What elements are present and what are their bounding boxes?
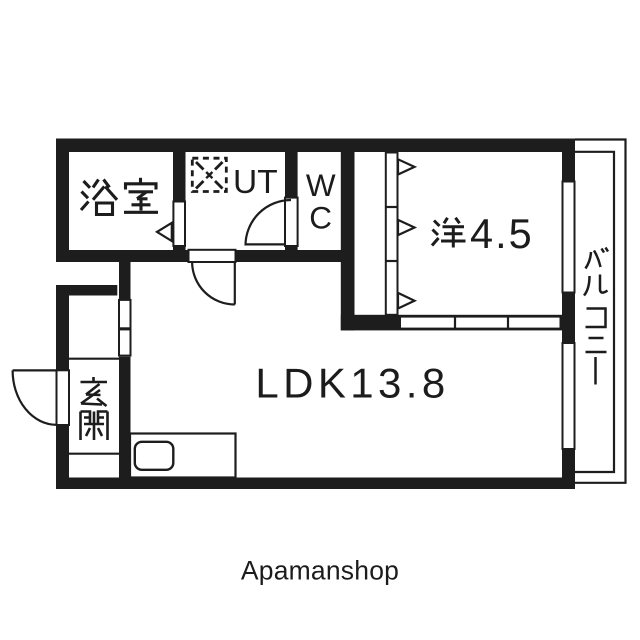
svg-text:C: C	[309, 200, 332, 236]
svg-text:Apamanshop: Apamanshop	[241, 556, 399, 586]
svg-text:LDK13.8: LDK13.8	[255, 360, 449, 407]
svg-text:W: W	[306, 167, 336, 203]
svg-text:4.5: 4.5	[470, 210, 534, 257]
svg-text:UT: UT	[233, 164, 278, 201]
